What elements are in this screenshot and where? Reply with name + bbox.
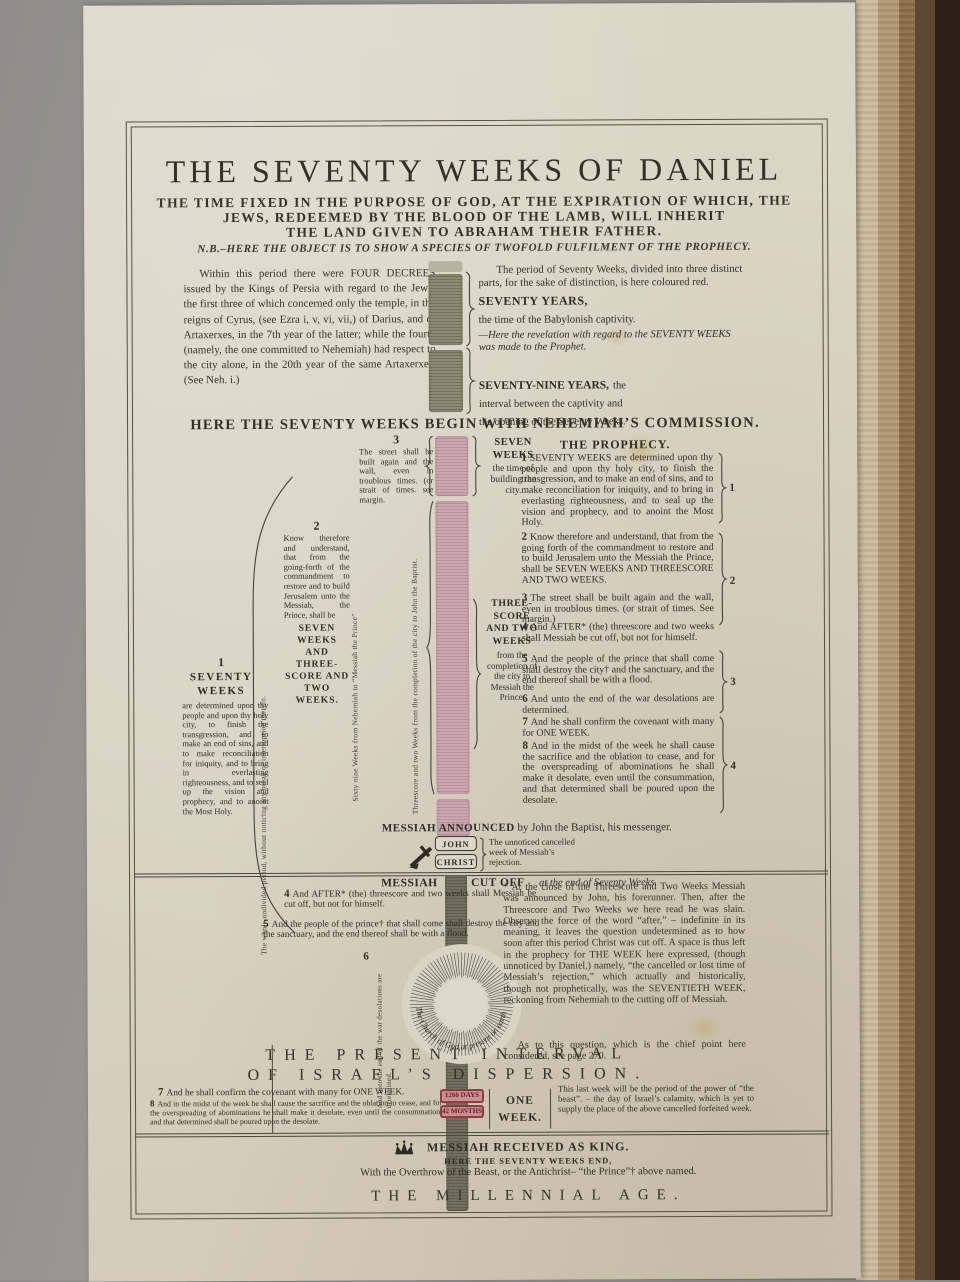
cutoff-item-5-num: 5 [263,918,272,930]
cutoff-footnote: * At the close of the Threescore and Two… [503,881,746,1006]
prophecy-num: 5 [522,653,531,665]
cutoff-item-5: 5And the people of the prince† that shal… [263,918,539,941]
badge-42-months: 42 MONTHS [440,1104,484,1118]
seventy-years-body: the time of the Babylonish captivity. [479,313,636,326]
brace-prophecy-group-4 [718,717,727,813]
cutoff-item-4-num: 4 [284,888,293,900]
one-week-divider-right [550,1089,551,1129]
prophecy-text: SEVENTY WEEKS are determined upon thy pe… [521,452,713,528]
king-line-3: With the Overthrow of the Beast, or the … [238,1165,818,1179]
final-item-8-num: 8 [150,1098,158,1108]
column-3-text: The street shall be built again and the … [359,447,433,505]
one-week-line-2: WEEK. [494,1110,546,1127]
one-week-label: ONE WEEK. [494,1093,546,1127]
christ-box: CHRIST [435,854,477,869]
messiah-announced-rest: by John the Baptist, his messenger. [517,821,671,834]
messiah-announced-bold: MESSIAH ANNOUNCED [382,822,515,835]
cancelled-week-note: The unnoticed cancelled week of Messiah’… [489,837,587,868]
subtitle-line-3: THE LAND GIVEN TO ABRAHAM THEIR FATHER. [144,223,804,241]
prophecy-group-mark-2: 2 [730,575,736,587]
seventy-years-title: SEVENTY YEARS, [478,294,588,308]
cutoff-item-5-text: And the people of the prince† that shall… [263,919,539,941]
column-3-number: 3 [359,432,433,447]
cutoff-item-4-text: And AFTER* (the) threescore and two week… [284,889,536,911]
threescore-john-rotated-text: Threescore and two Weeks from the comple… [409,506,419,814]
one-week-divider-left [489,1089,490,1129]
photo-dark-border [935,0,960,1280]
book-spine-shadow [915,0,935,1280]
prophecy-num: 6 [522,693,531,705]
four-decrees-paragraph: Within this period there were FOUR DECRE… [183,266,436,389]
prophecy-num: 8 [522,740,531,752]
prophecy-item-1: 1SEVENTY WEEKS are determined upon thy p… [521,452,713,529]
page-edge-stack-mid [878,0,899,1280]
interval-heading-line-1: THE PRESENT INTERVAL [168,1045,728,1065]
prophecy-num: 4 [522,621,531,633]
seven-weeks-bar [435,436,468,496]
brace-prophecy-group-2 [718,533,727,625]
prophecy-item-7: 7And he shall confirm the covenant with … [522,716,714,739]
prophecy-group-mark-4: 4 [731,760,737,772]
final-item-7-num: 7 [158,1086,167,1098]
duration-badges: 1260 DAYS 42 MONTHS [440,1089,484,1118]
brace-seven-weeks-right [471,436,480,496]
brace-threescore-left [425,501,435,794]
one-week-line-1: ONE [494,1093,546,1110]
prophecy-text: And AFTER* (the) threescore and two week… [522,621,714,644]
king-line-1: MESSIAH RECEIVED AS KING. [238,1138,818,1156]
final-item-7: 7And he shall confirm the covenant with … [158,1086,454,1099]
brace-seventy-nine-years [465,348,475,414]
prophecy-item-5: 5And the people of the prince that shall… [522,653,714,687]
final-item-8: 8And in the midst of the week he shall c… [150,1098,442,1126]
john-box: JOHN [435,836,477,851]
prophecy-item-2: 2Know therefore and understand, that fro… [522,531,714,586]
prophecy-item-4: 4And AFTER* (the) threescore and two wee… [522,621,714,644]
prophecy-num: 7 [522,716,531,728]
seventy-years-label: SEVENTY YEARS, the time of the Babylonis… [478,291,742,328]
cutoff-item-4: 4And AFTER* (the) threescore and two wee… [284,888,536,911]
revelation-note: —Here the revelation with regard to the … [479,329,743,354]
cutoff-item-6-num: 6 [363,950,372,962]
prophecy-item-6: 6And unto the end of the war desolations… [522,693,714,716]
threescore-two-weeks-bar [435,501,469,794]
brace-prophecy-group-3 [718,651,727,713]
john-christ-boxes: JOHN CHRIST [435,836,477,869]
king-block: MESSIAH RECEIVED AS KING. HERE THE SEVEN… [238,1138,818,1206]
page-edge-stack-deep [899,0,915,1280]
last-week-note: This last week will be the period of the… [558,1083,754,1114]
final-item-8-text: And in the midst of the week he shall ca… [150,1098,442,1126]
millennial-age-heading: THE MILLENNIAL AGE. [238,1186,818,1206]
seventy-nine-years-bar [429,350,463,412]
coloured-red-note: The period of Seventy Weeks, divided int… [478,263,742,289]
sixty-nine-weeks-rotated-text: Sixty nine Weeks from Nehemiah to “Messi… [349,506,359,801]
prophecy-heading: THE PROPHECY. [535,437,695,453]
brace-threescore-label [472,599,482,749]
column-3-street: 3 The street shall be built again and th… [359,432,433,505]
final-item-7-text: And he shall confirm the covenant with m… [166,1087,404,1098]
seventy-nine-title: SEVENTY-NINE YEARS, [479,380,609,393]
seventy-years-bar [428,274,462,345]
right-intro-block: The period of Seventy Weeks, divided int… [478,263,743,430]
brace-prophecy-group-1 [717,453,726,523]
book-page: THE SEVENTY WEEKS OF DANIEL THE TIME FIX… [83,2,861,1281]
whole-period-parenthesis [245,475,297,935]
brace-seventy-years [464,272,474,346]
page-title: THE SEVENTY WEEKS OF DANIEL [144,151,804,191]
cross-icon [407,842,437,870]
prophecy-group-mark-3: 3 [730,676,736,688]
photo-of-book-page: { "header": { "title": "THE SEVENTY WEEK… [0,0,960,1280]
commission-heading: HERE THE SEVENTY WEEKS BEGIN WITH NEHEMI… [145,415,805,435]
badge-1260-days: 1260 DAYS [440,1089,484,1103]
brace-cancelled-week [479,838,487,871]
prophecy-item-8: 8And in the midst of the week he shall c… [522,740,714,806]
prophecy-text: And unto the end of the war desolations … [522,693,714,716]
prophecy-num: 2 [522,531,531,543]
prophecy-text: Know therefore and understand, that from… [522,531,714,586]
prophecy-num: 1 [521,452,530,464]
timeline-bar-cap [428,261,462,272]
prophecy-text: And he shall confirm the covenant with m… [522,716,714,739]
prophecy-group-mark-1: 1 [729,482,735,494]
prophecy-num: 3 [522,592,531,604]
prophecy-text: And in the midst of the week he shall ca… [522,740,714,805]
messiah-announced-line: MESSIAH ANNOUNCED by John the Baptist, h… [367,821,687,834]
prophecy-text: And the people of the prince that shall … [522,653,714,686]
